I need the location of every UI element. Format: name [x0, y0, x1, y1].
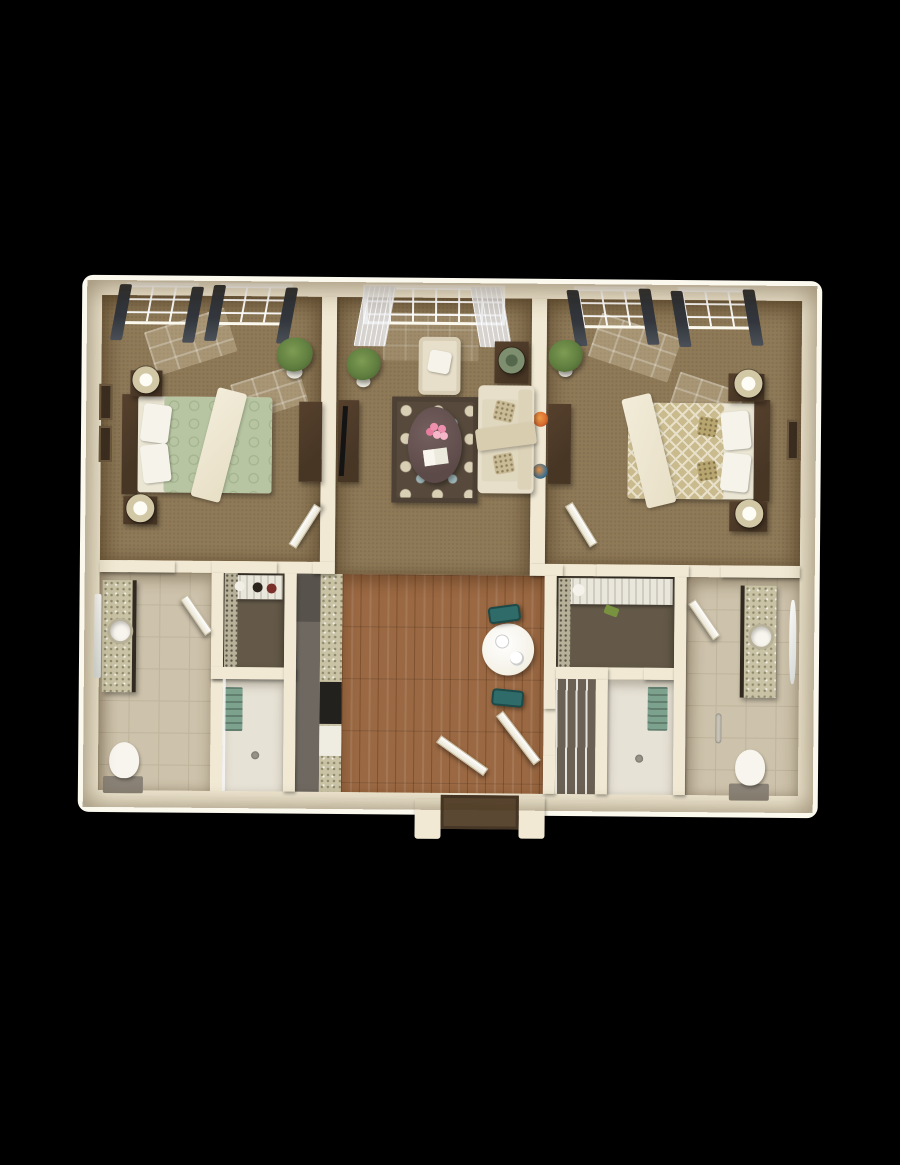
- hanging-clothes: [558, 578, 571, 667]
- toilet: [109, 742, 139, 778]
- sofa-pillow: [492, 452, 515, 475]
- bistro-table: [482, 623, 534, 675]
- wall-bedroomleft-living: [320, 297, 337, 562]
- cooktop: [319, 682, 341, 724]
- bed-pillow: [720, 410, 752, 451]
- wall-segment: [556, 667, 608, 679]
- dining-chair: [491, 688, 524, 708]
- entry-threshold: [518, 797, 544, 839]
- wall-segment: [212, 561, 277, 574]
- wall-segment: [100, 560, 175, 573]
- wall-frame: [99, 426, 112, 462]
- wall-bath-closet-left: [211, 573, 224, 679]
- flower-bouquet: [430, 423, 438, 431]
- background: [0, 0, 900, 1165]
- bed-headboard: [753, 400, 770, 502]
- dishwasher: [319, 726, 341, 756]
- wall-suite-bath-right: [673, 577, 687, 795]
- bed-headboard: [121, 394, 138, 494]
- bed-pillow: [720, 452, 752, 493]
- accent-pillow: [696, 460, 718, 482]
- closet-items: [235, 581, 245, 591]
- towel-stack: [647, 687, 667, 731]
- wall-segment: [530, 564, 563, 576]
- shower-rail: [715, 713, 721, 743]
- wall-segment: [721, 565, 800, 578]
- entry-threshold: [414, 799, 440, 839]
- wall-closet-kitchen: [283, 574, 297, 792]
- table-lamp: [735, 499, 763, 527]
- sofa-pillow: [492, 400, 516, 424]
- table-lamp: [132, 366, 159, 393]
- towel-stack: [224, 687, 242, 731]
- doormat: [441, 795, 519, 830]
- round-wall-art: [533, 412, 548, 427]
- floorplan-building: [83, 280, 818, 813]
- accent-pillow: [697, 416, 719, 438]
- armchair-pillow: [427, 349, 453, 375]
- wall-frame: [99, 384, 112, 420]
- wall-linen-shower-right: [595, 679, 608, 794]
- refrigerator: [296, 574, 320, 622]
- sink: [107, 618, 133, 644]
- round-wall-art: [533, 464, 548, 479]
- shower-drain: [635, 755, 643, 763]
- dresser: [299, 402, 323, 482]
- place-settings: [496, 635, 508, 647]
- bed-pillow: [140, 403, 173, 444]
- wall-segment: [597, 564, 689, 577]
- closet-items: [573, 584, 585, 596]
- linen-closet-shelving: [555, 679, 596, 794]
- green-lamp: [499, 347, 525, 373]
- wall-segment: [313, 562, 335, 574]
- dresser: [548, 404, 572, 484]
- wall-frame: [787, 420, 799, 460]
- wall-segment: [543, 756, 555, 794]
- toilet: [735, 749, 765, 785]
- table-lamp: [126, 494, 154, 522]
- shower-drain: [251, 751, 259, 759]
- wall-segment: [644, 668, 674, 680]
- table-lamp: [734, 369, 762, 397]
- sink: [748, 624, 774, 650]
- mirror: [94, 594, 102, 678]
- bed-pillow: [140, 443, 172, 484]
- toilet-tank: [729, 783, 769, 800]
- open-book: [423, 447, 449, 466]
- toilet-tank: [103, 776, 143, 793]
